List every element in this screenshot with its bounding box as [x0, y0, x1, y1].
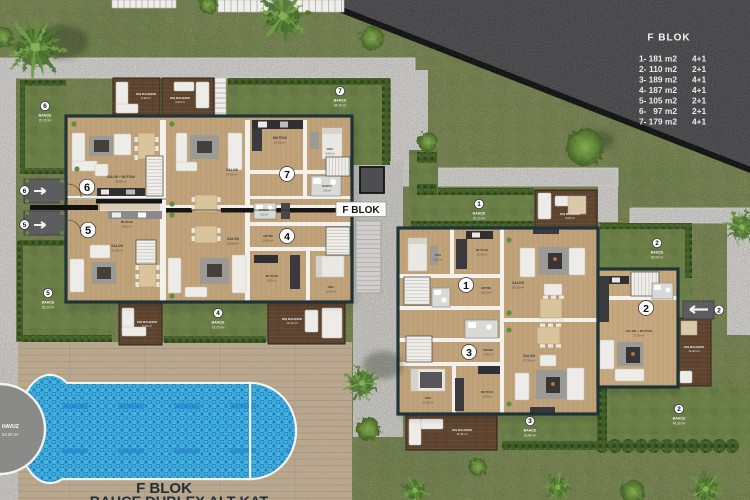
svg-text:12.00 m²: 12.00 m²: [326, 289, 337, 293]
svg-text:2.20 m²: 2.20 m²: [323, 189, 331, 192]
svg-text:1: 1: [463, 280, 469, 292]
svg-text:SALON: SALON: [226, 168, 238, 172]
svg-text:4+1: 4+1: [692, 75, 707, 85]
svg-text:ANTRE: ANTRE: [263, 234, 273, 238]
svg-text:ODA: ODA: [327, 147, 335, 151]
svg-text:28.20 m²: 28.20 m²: [42, 305, 55, 309]
svg-text:3.10 m²: 3.10 m²: [260, 213, 268, 216]
svg-text:36.50 m²: 36.50 m²: [512, 285, 524, 289]
svg-text:2+1: 2+1: [692, 96, 707, 106]
svg-text:53.00 m²: 53.00 m²: [2, 432, 19, 437]
svg-text:MUTFAK: MUTFAK: [266, 274, 279, 278]
svg-text:10.00 m²: 10.00 m²: [481, 290, 492, 294]
svg-text:2+1: 2+1: [692, 64, 707, 74]
svg-text:ANTRE: ANTRE: [481, 286, 491, 290]
svg-text:F BLOK: F BLOK: [647, 33, 690, 44]
svg-text:35.00 m²: 35.00 m²: [115, 179, 126, 183]
svg-text:20.10 m²: 20.10 m²: [473, 216, 486, 220]
svg-text:5: 5: [85, 225, 91, 237]
svg-text:6-: 6-: [639, 106, 647, 116]
svg-text:BAHÇE: BAHÇE: [524, 429, 537, 433]
svg-text:11.00 m²: 11.00 m²: [688, 349, 699, 353]
svg-text:6.30 m²: 6.30 m²: [141, 96, 151, 100]
svg-text:34.10 m²: 34.10 m²: [334, 103, 347, 107]
svg-text:5: 5: [23, 222, 27, 229]
svg-text:SALON + MUTFAK: SALON + MUTFAK: [107, 175, 136, 179]
svg-text:9.30 m²: 9.30 m²: [483, 352, 492, 356]
svg-text:SALON + MUTFAK: SALON + MUTFAK: [626, 329, 653, 333]
svg-text:ODA: ODA: [425, 396, 433, 400]
svg-text:BAHÇE: BAHÇE: [673, 417, 686, 421]
svg-text:179 m2: 179 m2: [649, 117, 678, 127]
svg-text:6.00 m²: 6.00 m²: [565, 216, 575, 220]
svg-text:BAHÇE: BAHÇE: [473, 212, 486, 216]
svg-text:2: 2: [717, 307, 721, 314]
svg-text:12.10 m²: 12.10 m²: [286, 321, 297, 325]
svg-text:9.20 m²: 9.20 m²: [482, 394, 491, 398]
svg-text:4+1: 4+1: [692, 85, 707, 95]
svg-text:20.20 m²: 20.20 m²: [39, 118, 52, 122]
svg-text:1-: 1-: [639, 54, 647, 64]
svg-text:4: 4: [284, 231, 290, 243]
svg-text:7: 7: [284, 169, 290, 181]
svg-text:HAVUZ: HAVUZ: [2, 424, 19, 430]
svg-text:SALON: SALON: [111, 244, 123, 248]
svg-text:9.00 m²: 9.00 m²: [267, 278, 276, 282]
svg-text:ODA: ODA: [328, 285, 336, 289]
svg-text:37.50 m²: 37.50 m²: [523, 358, 535, 362]
svg-text:26.00 m²: 26.00 m²: [651, 255, 664, 259]
svg-text:ODA: ODA: [435, 253, 441, 257]
svg-text:BAHÇE DUBLEX ALT KAT: BAHÇE DUBLEX ALT KAT: [90, 495, 269, 500]
svg-text:10.08 m²: 10.08 m²: [263, 238, 274, 242]
svg-text:BANYO: BANYO: [322, 184, 331, 188]
svg-text:MUTFAK: MUTFAK: [481, 390, 494, 394]
svg-text:187 m2: 187 m2: [649, 85, 678, 95]
svg-text:32.00 m²: 32.00 m²: [634, 333, 645, 337]
svg-text:SALON: SALON: [512, 281, 524, 285]
svg-text:36.50 m²: 36.50 m²: [227, 241, 239, 245]
svg-text:181 m2: 181 m2: [649, 54, 678, 64]
svg-text:33.00 m²: 33.00 m²: [111, 248, 123, 252]
svg-text:4-: 4-: [639, 85, 647, 95]
svg-text:SALON: SALON: [523, 354, 535, 358]
svg-text:BAHÇE: BAHÇE: [42, 301, 55, 305]
svg-text:189 m2: 189 m2: [649, 75, 678, 85]
svg-text:2+1: 2+1: [692, 106, 707, 116]
svg-text:110 m2: 110 m2: [649, 64, 677, 74]
svg-text:7: 7: [338, 88, 342, 95]
svg-text:6: 6: [23, 188, 27, 195]
svg-text:BAHÇE: BAHÇE: [39, 114, 52, 118]
svg-text:4.20 m²: 4.20 m²: [175, 100, 185, 104]
svg-text:10.00 m²: 10.00 m²: [477, 252, 488, 256]
svg-text:MUTFAK: MUTFAK: [476, 248, 489, 252]
svg-text:5.20 m²: 5.20 m²: [142, 324, 152, 328]
svg-text:6: 6: [84, 182, 90, 194]
svg-text:4: 4: [216, 310, 220, 317]
svg-text:3: 3: [466, 347, 472, 359]
svg-text:BAHÇE: BAHÇE: [212, 321, 225, 325]
svg-text:16.80 m²: 16.80 m²: [524, 433, 537, 437]
svg-text:F BLOK: F BLOK: [342, 205, 380, 216]
svg-text:6: 6: [43, 103, 47, 110]
svg-text:2: 2: [655, 240, 659, 247]
svg-text:1: 1: [477, 201, 481, 208]
svg-text:2: 2: [643, 303, 649, 315]
svg-text:MUTFAK: MUTFAK: [273, 136, 288, 140]
svg-text:2-: 2-: [639, 64, 647, 74]
svg-text:BAHÇE: BAHÇE: [651, 251, 664, 255]
svg-text:MUTFAK: MUTFAK: [121, 220, 134, 224]
svg-text:3-: 3-: [639, 75, 647, 85]
svg-text:4+1: 4+1: [692, 54, 707, 64]
svg-text:8.00 m²: 8.00 m²: [122, 224, 131, 228]
svg-text:BAHÇE: BAHÇE: [334, 99, 347, 103]
svg-text:5-: 5-: [639, 96, 647, 106]
svg-text:4+1: 4+1: [692, 117, 707, 127]
svg-text:11.50 m²: 11.50 m²: [423, 400, 434, 404]
svg-text:9.00 m²: 9.00 m²: [325, 151, 334, 155]
svg-text:9.30 m²: 9.30 m²: [434, 258, 443, 261]
svg-text:18.20 m²: 18.20 m²: [212, 325, 225, 329]
svg-text:105 m2: 105 m2: [649, 96, 678, 106]
svg-text:SALON: SALON: [227, 237, 239, 241]
svg-text:ANTRE: ANTRE: [483, 348, 493, 352]
svg-text:97 m2: 97 m2: [653, 106, 677, 116]
svg-text:7-: 7-: [639, 117, 647, 127]
svg-text:10.00 m²: 10.00 m²: [274, 140, 286, 144]
svg-text:2: 2: [677, 406, 681, 413]
svg-text:40.30 m²: 40.30 m²: [673, 421, 686, 425]
svg-text:5: 5: [46, 290, 50, 297]
svg-text:11.50 m²: 11.50 m²: [456, 432, 467, 436]
svg-text:37.50 m²: 37.50 m²: [226, 172, 238, 176]
